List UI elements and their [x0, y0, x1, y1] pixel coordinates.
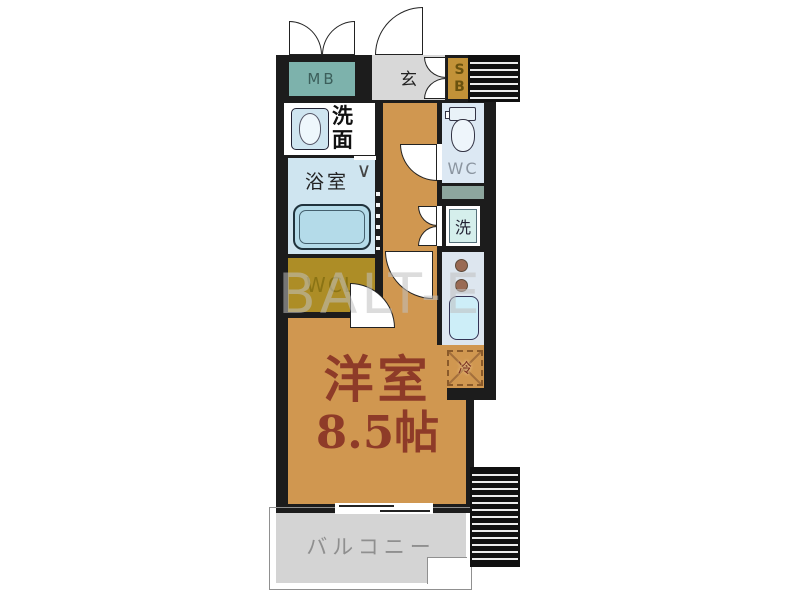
genkan-label: 玄	[400, 65, 417, 90]
washer-inner: 洗	[449, 209, 477, 243]
wc-label: WC	[442, 158, 484, 178]
floor-plan: MB 玄 S B 洗面 浴室 ∨ WCL WC	[0, 0, 800, 600]
bathtub-icon	[293, 204, 371, 250]
balcony-notch	[427, 557, 467, 584]
wc-door-opening	[437, 144, 442, 180]
pillar-bottom-right	[470, 467, 520, 567]
washer-pan: 洗	[444, 204, 482, 248]
room-name: 洋室	[285, 352, 470, 408]
room-mb: MB	[289, 62, 355, 96]
mb-door-left-arc	[289, 21, 322, 55]
shelf-strip	[442, 186, 484, 199]
room-size: 8.5帖	[285, 408, 470, 458]
balcony-window	[335, 503, 433, 514]
bathtub-inner-line	[299, 210, 365, 244]
sb-label: S B	[454, 62, 465, 94]
folding-door-icon: ∨	[352, 158, 376, 182]
mb-label: MB	[307, 70, 336, 88]
watermark: BALT-E	[278, 262, 484, 326]
pillar-top-right	[468, 55, 520, 102]
toilet-handle-icon	[445, 111, 450, 119]
entrance-door-arc	[375, 7, 423, 55]
balcony-label: バルコニー	[276, 534, 466, 558]
mb-door-right-arc	[322, 21, 355, 55]
window-line	[339, 505, 394, 507]
main-room-label: 洋室 8.5帖	[285, 352, 470, 458]
washer-door-opening	[437, 206, 442, 246]
vanity-bowl-icon	[299, 113, 321, 145]
toilet-bowl-icon	[451, 119, 475, 152]
wall-dash-marks	[376, 192, 380, 250]
vanity-sink-icon	[291, 108, 329, 150]
washer-label: 洗	[455, 214, 471, 238]
window-line	[380, 510, 430, 512]
washroom-label: 洗面	[332, 105, 358, 155]
